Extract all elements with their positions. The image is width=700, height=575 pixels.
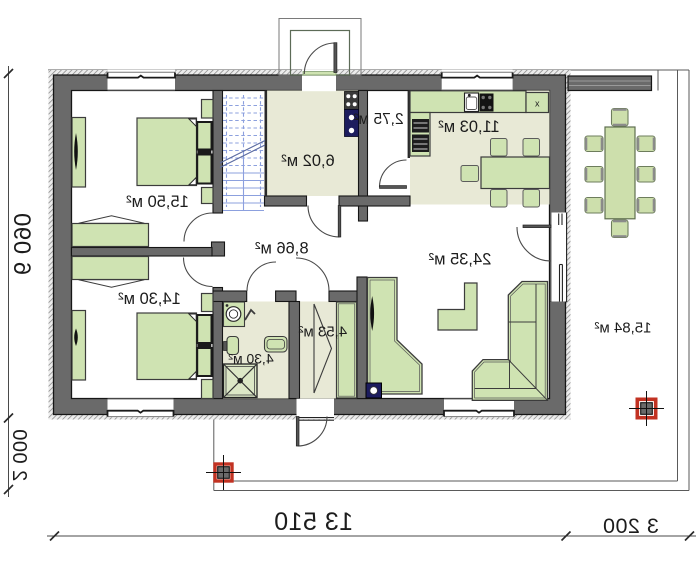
- svg-text:4,53 м²: 4,53 м²: [298, 324, 347, 341]
- svg-text:6 090: 6 090: [8, 213, 35, 276]
- svg-text:14,30 м²: 14,30 м²: [118, 290, 181, 308]
- svg-text:11,03 м²: 11,03 м²: [438, 118, 500, 136]
- svg-text:6,02 м²: 6,02 м²: [281, 152, 335, 170]
- svg-text:13 510: 13 510: [274, 508, 353, 536]
- svg-text:15,50 м²: 15,50 м²: [126, 193, 189, 211]
- svg-text:4,30 м²: 4,30 м²: [228, 351, 274, 367]
- svg-text:8,66 м²: 8,66 м²: [255, 240, 309, 258]
- svg-text:3 200: 3 200: [603, 514, 659, 538]
- svg-text:24,35 м²: 24,35 м²: [428, 251, 491, 269]
- svg-text:2 000: 2 000: [8, 429, 30, 482]
- svg-text:2,75 м²: 2,75 м²: [353, 111, 403, 128]
- svg-text:15,84 м²: 15,84 м²: [594, 320, 651, 337]
- svg-text:x: x: [535, 99, 540, 109]
